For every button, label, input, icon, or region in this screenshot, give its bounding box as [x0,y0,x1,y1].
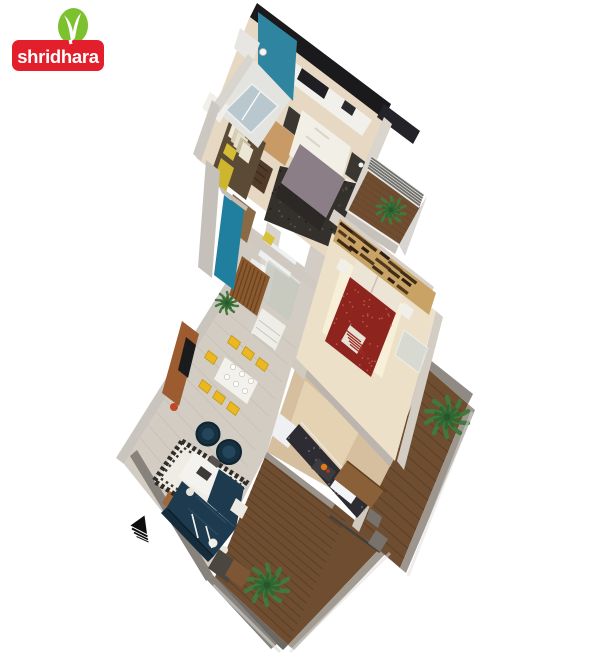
svg-text:shridhara: shridhara [17,46,100,67]
